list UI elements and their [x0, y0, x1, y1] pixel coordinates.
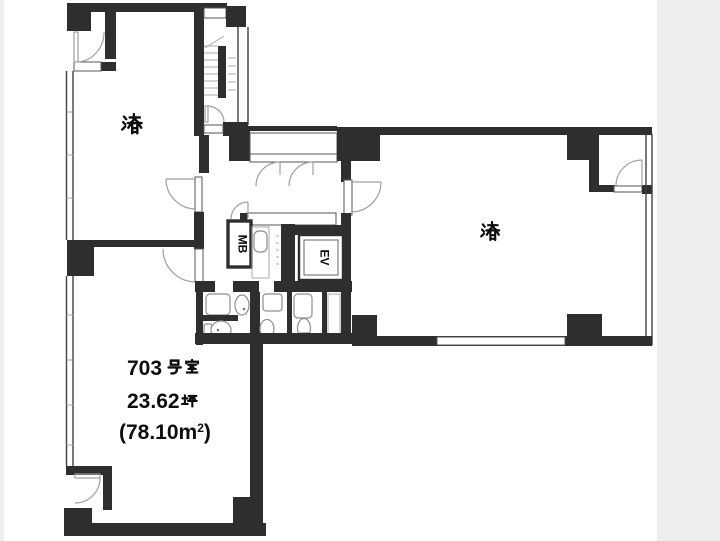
- svg-text:(78.10m2): (78.10m2): [119, 421, 211, 444]
- svg-text:703: 703: [127, 357, 162, 380]
- svg-text:23.62: 23.62: [127, 390, 180, 413]
- svg-text:EV: EV: [317, 249, 331, 265]
- svg-text:MB: MB: [235, 235, 249, 254]
